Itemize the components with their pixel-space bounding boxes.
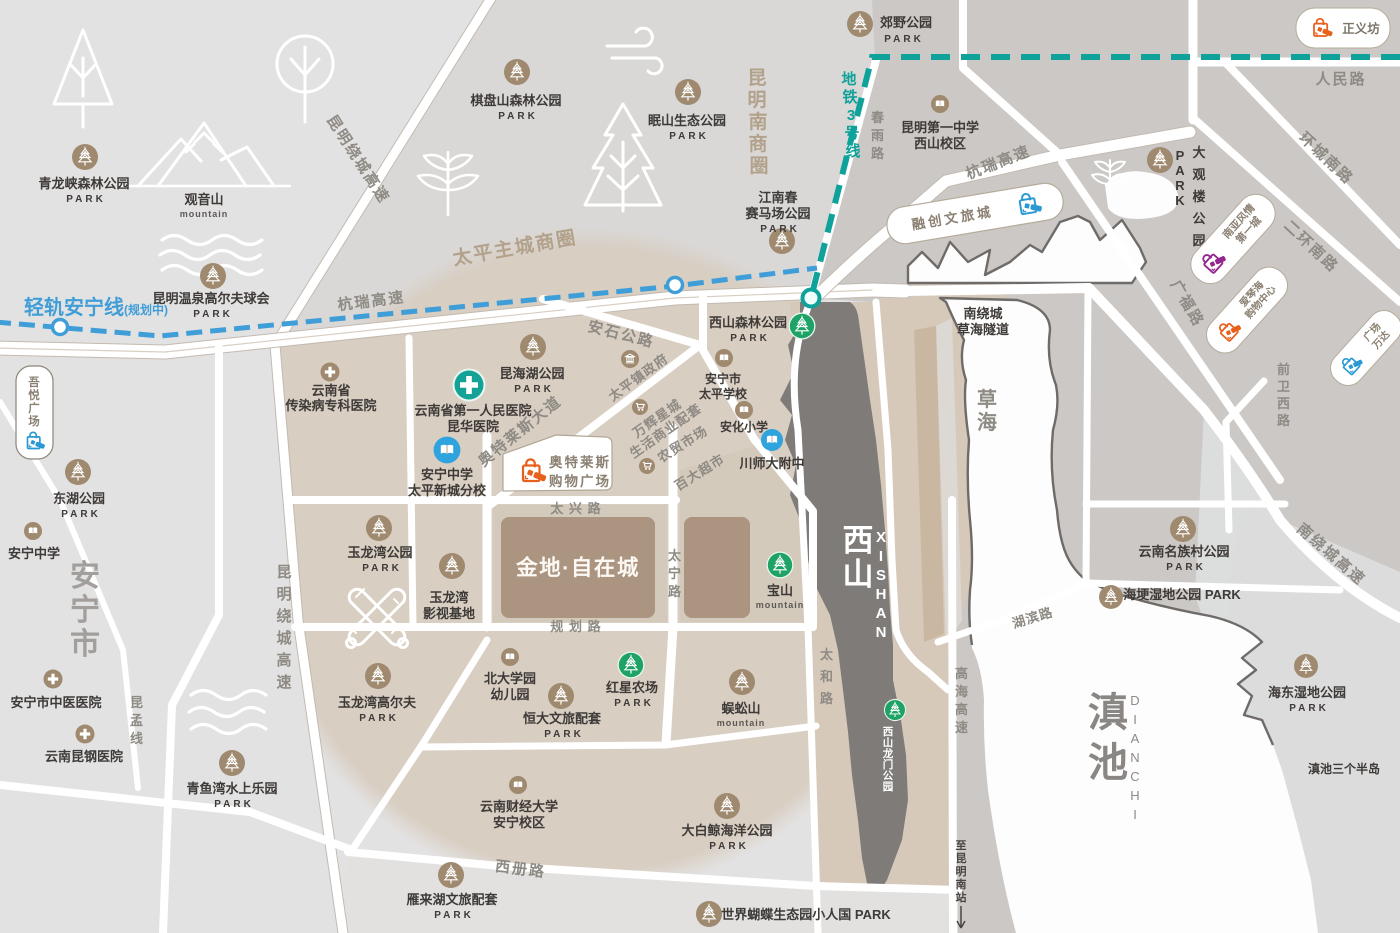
svg-text:昆: 昆 [130,695,144,710]
svg-text:雁来湖文旅配套: 雁来湖文旅配套 [406,892,498,907]
svg-text:市: 市 [70,627,100,661]
svg-text:A: A [876,605,887,622]
svg-text:太 兴 路: 太 兴 路 [549,501,601,516]
svg-text:南: 南 [956,877,967,891]
svg-text:池: 池 [1088,741,1128,785]
svg-text:北大学园: 北大学园 [484,671,536,686]
svg-text:山: 山 [843,557,874,592]
svg-text:站: 站 [956,890,967,904]
svg-text:前: 前 [1277,362,1291,377]
svg-text:P: P [1176,148,1185,163]
svg-text:规 划 路: 规 划 路 [550,619,601,634]
svg-text:昆海湖公园: 昆海湖公园 [499,366,564,381]
svg-text:PARK: PARK [193,309,233,320]
svg-text:宁: 宁 [70,593,100,627]
svg-text:S: S [876,567,886,584]
svg-text:云南省第一人民医院: 云南省第一人民医院 [414,403,531,418]
svg-text:玉龙湾高尔夫: 玉龙湾高尔夫 [338,695,417,710]
svg-text:昆: 昆 [747,67,766,89]
svg-text:海: 海 [955,684,969,699]
svg-text:云南省: 云南省 [311,383,350,398]
svg-text:N: N [876,624,887,641]
svg-text:安宁中学: 安宁中学 [421,467,473,482]
svg-text:雨: 雨 [871,128,885,143]
svg-text:商: 商 [748,132,767,155]
svg-text:H: H [1130,788,1139,803]
svg-text:郊野公园: 郊野公园 [880,15,932,30]
svg-text:云南财经大学: 云南财经大学 [480,799,558,814]
svg-text:A: A [1131,731,1140,746]
svg-text:滇: 滇 [1088,691,1128,735]
svg-text:和: 和 [820,669,834,684]
svg-text:A: A [1175,163,1185,178]
svg-text:吾: 吾 [28,376,40,389]
svg-text:I: I [879,548,883,565]
svg-text:线: 线 [130,731,144,746]
svg-text:云南昆钢医院: 云南昆钢医院 [45,749,123,764]
svg-text:D: D [1130,693,1139,708]
svg-text:正义坊: 正义坊 [1342,21,1380,36]
svg-text:PARK: PARK [1289,703,1329,714]
svg-text:明: 明 [956,865,967,878]
svg-text:海: 海 [977,410,997,434]
svg-text:号: 号 [844,125,859,142]
svg-text:幼儿园: 幼儿园 [490,687,529,702]
svg-text:明: 明 [747,89,766,111]
svg-text:奥特莱斯: 奥特莱斯 [549,454,611,470]
svg-text:PARK: PARK [884,34,924,45]
svg-text:高: 高 [955,702,969,717]
svg-text:公: 公 [1192,211,1205,226]
svg-text:大白鲸海洋公园: 大白鲸海洋公园 [681,823,772,838]
svg-text:西山校区: 西山校区 [914,136,966,151]
svg-text:城: 城 [276,629,293,647]
svg-text:PARK: PARK [514,384,554,395]
svg-text:PARK: PARK [66,194,106,205]
svg-text:铁: 铁 [842,88,857,106]
svg-text:玉龙湾: 玉龙湾 [429,590,468,605]
svg-text:PARK: PARK [544,729,584,740]
svg-text:购物广场: 购物广场 [549,473,611,489]
svg-text:春: 春 [870,110,885,125]
svg-text:西: 西 [843,523,874,558]
svg-text:PARK: PARK [61,509,101,520]
svg-text:西山森林公园: 西山森林公园 [709,315,787,330]
svg-text:mountain: mountain [756,600,805,610]
svg-text:东湖公园: 东湖公园 [53,491,105,506]
svg-text:江南春: 江南春 [758,190,798,205]
svg-text:PARK: PARK [730,333,770,344]
svg-text:太: 太 [667,548,682,563]
svg-text:观音山: 观音山 [184,192,223,207]
svg-text:场: 场 [28,414,40,428]
svg-text:人民路: 人民路 [1315,70,1366,88]
svg-text:川师大附中: 川师大附中 [738,456,804,471]
svg-text:速: 速 [955,720,969,735]
svg-text:高: 高 [276,651,293,669]
svg-text:青鱼湾水上乐园: 青鱼湾水上乐园 [186,781,277,796]
svg-text:玉龙湾公园: 玉龙湾公园 [347,545,412,560]
svg-text:mountain: mountain [180,209,229,219]
svg-text:速: 速 [276,673,293,691]
svg-text:昆: 昆 [276,564,293,581]
svg-text:PARK: PARK [614,698,654,709]
svg-text:PARK: PARK [709,841,749,852]
svg-text:悦: 悦 [28,388,40,402]
svg-text:K: K [1175,193,1185,208]
svg-text:PARK: PARK [362,563,402,574]
svg-text:南: 南 [748,111,767,133]
svg-text:路: 路 [871,146,885,161]
svg-text:大: 大 [1192,145,1205,160]
svg-text:金地·自在城: 金地·自在城 [515,555,640,580]
svg-text:恒大文旅配套: 恒大文旅配套 [523,711,602,726]
svg-text:至: 至 [956,839,967,852]
svg-text:PARK: PARK [760,224,800,235]
svg-text:西: 西 [1277,396,1291,411]
svg-text:海东湿地公园: 海东湿地公园 [1268,685,1346,700]
svg-text:昆华医院: 昆华医院 [447,419,499,434]
svg-text:明: 明 [276,586,293,603]
svg-text:海埂湿地公园 PARK: 海埂湿地公园 PARK [1123,587,1241,602]
svg-text:线: 线 [845,142,860,160]
svg-text:X: X [876,529,886,546]
svg-text:安宁市: 安宁市 [705,371,741,386]
svg-text:绕: 绕 [276,607,293,625]
svg-text:3: 3 [847,107,855,124]
svg-text:孟: 孟 [130,713,144,728]
svg-text:路: 路 [820,691,834,706]
svg-text:影视基地: 影视基地 [423,606,475,621]
svg-text:PARK: PARK [669,131,709,142]
svg-text:蜈蚣山: 蜈蚣山 [721,701,760,716]
svg-text:地: 地 [841,70,856,88]
svg-text:PARK: PARK [498,111,538,122]
svg-text:草海隧道: 草海隧道 [957,322,1009,337]
svg-text:楼: 楼 [1192,189,1205,204]
svg-text:世界蝴蝶生态园小人国 PARK: 世界蝴蝶生态园小人国 PARK [721,907,891,922]
svg-text:草: 草 [977,388,997,411]
svg-text:昆: 昆 [956,852,967,865]
svg-text:昆明第一中学: 昆明第一中学 [901,120,979,135]
svg-text:宝山: 宝山 [767,583,793,598]
svg-text:赛马场公园: 赛马场公园 [744,206,810,221]
svg-text:PARK: PARK [434,910,474,921]
svg-text:棋盘山森林公园: 棋盘山森林公园 [469,93,561,108]
svg-text:观: 观 [1192,167,1205,182]
svg-text:PARK: PARK [214,799,254,810]
svg-text:PARK: PARK [1166,562,1206,573]
svg-text:圈: 圈 [749,155,768,177]
svg-text:广: 广 [28,401,40,415]
svg-text:园: 园 [883,781,894,793]
svg-text:安化小学: 安化小学 [720,419,768,434]
svg-text:H: H [876,586,887,603]
svg-text:路: 路 [1277,413,1291,428]
svg-text:传染病专科医院: 传染病专科医院 [284,398,376,413]
svg-text:宁: 宁 [668,566,682,581]
svg-text:南绕城: 南绕城 [963,306,1002,321]
svg-text:太: 太 [819,647,834,662]
svg-text:I: I [1133,712,1137,727]
svg-text:路: 路 [668,584,682,599]
svg-text:眠山生态公园: 眠山生态公园 [648,113,726,128]
svg-text:C: C [1130,769,1139,784]
svg-text:mountain: mountain [717,718,766,728]
svg-text:红星农场: 红星农场 [606,680,658,695]
svg-text:云南名族村公园: 云南名族村公园 [1138,544,1229,559]
svg-text:安宁校区: 安宁校区 [493,815,545,830]
svg-text:太平学校: 太平学校 [699,386,748,401]
svg-text:I: I [1133,807,1137,822]
svg-text:安: 安 [70,560,100,593]
svg-text:青龙峡森林公园: 青龙峡森林公园 [38,176,129,191]
svg-text:R: R [1175,178,1185,193]
svg-text:太平新城分校: 太平新城分校 [407,483,487,498]
svg-text:卫: 卫 [1277,379,1291,394]
svg-text:安宁中学: 安宁中学 [8,546,60,561]
svg-text:安宁市中医医院: 安宁市中医医院 [10,695,101,710]
svg-text:昆明温泉高尔夫球会: 昆明温泉高尔夫球会 [152,291,270,306]
svg-text:高: 高 [955,666,969,681]
svg-text:滇池三个半岛: 滇池三个半岛 [1308,761,1380,776]
svg-text:PARK: PARK [359,713,399,724]
svg-text:N: N [1130,750,1139,765]
